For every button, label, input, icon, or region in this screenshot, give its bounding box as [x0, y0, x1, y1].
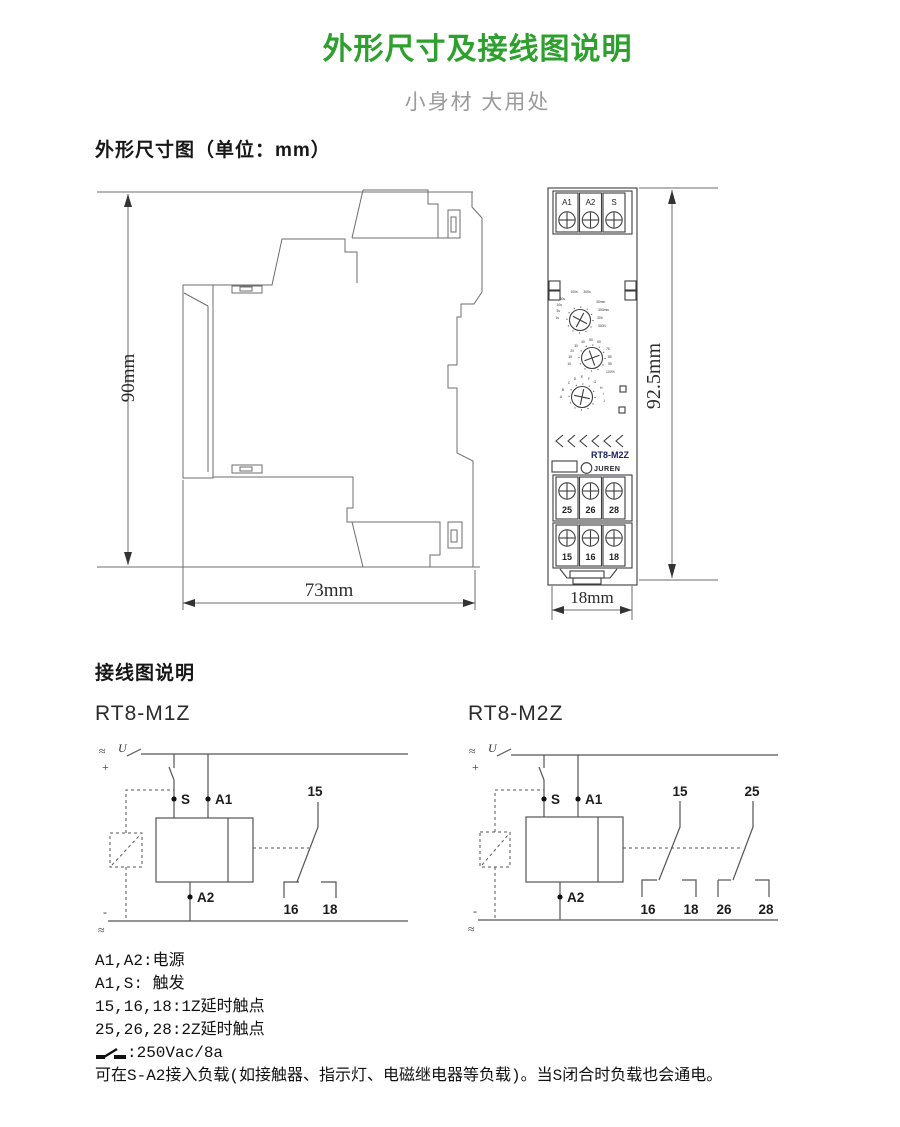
mid-terminal-block: 25 26 28	[553, 475, 632, 521]
knob3-label: B	[562, 388, 565, 392]
contact-26-label: 26	[716, 902, 732, 917]
note-load: 可在S-A2接入负载(如接触器、指示灯、电磁继电器等负载)。当S闭合时负载也会通…	[95, 1065, 885, 1088]
knob2-label: 40	[581, 340, 585, 344]
contact-18-label: 18	[683, 902, 699, 917]
led-red-icon	[619, 407, 625, 413]
brand-name: JUREN	[594, 464, 620, 473]
knob1-label: 1s	[555, 316, 559, 320]
screw-icon	[559, 212, 622, 228]
front-view-drawing: A1 A2 S	[540, 180, 725, 640]
ac-symbol: ≈	[468, 922, 475, 936]
front-view-dimensions: 92.5mm 18mm	[552, 188, 718, 620]
ac-symbol: ≈	[469, 744, 476, 758]
label-window	[552, 461, 577, 472]
knob2-label: 20	[570, 349, 574, 353]
note-contacts-1z: 15,16,18:1Z延时触点	[95, 996, 885, 1019]
contact-blade	[733, 801, 753, 880]
knob2-label: 30	[574, 344, 578, 348]
knob2-icon[interactable]	[579, 345, 605, 371]
knob1-label: 300h	[598, 324, 606, 328]
side-width-label: 73mm	[305, 580, 354, 601]
minus-label: -	[103, 905, 107, 919]
a1-label: A1	[585, 792, 603, 807]
a2-label: A2	[567, 890, 584, 905]
knob3-label: G	[594, 380, 597, 384]
front-height-label: 92.5mm	[643, 343, 665, 410]
brand-initial: R	[584, 464, 590, 473]
knob1-label: 30h	[597, 316, 603, 320]
wiring-heading: 接线图说明	[95, 658, 195, 685]
load-box	[480, 790, 544, 920]
terminal-26-label: 26	[585, 505, 595, 515]
terminal-s-label: S	[611, 198, 616, 207]
relay-box	[156, 818, 253, 882]
terminal-15-label: 15	[562, 552, 572, 562]
page-title: 外形尺寸及接线图说明	[0, 24, 900, 68]
terminal-28-label: 28	[609, 505, 619, 515]
minus-label: -	[473, 904, 477, 918]
knob3-label: H	[600, 386, 603, 390]
knob3-label: E	[581, 375, 584, 379]
note-contacts-2z: 25,26,28:2Z延时触点	[95, 1019, 885, 1042]
ac-symbol: ≈	[98, 923, 105, 937]
bottom-terminal-block: 15 16 18	[553, 523, 632, 568]
plus-label: +	[102, 760, 109, 774]
a2-label: A2	[197, 890, 214, 905]
terminal-16-label: 16	[585, 552, 595, 562]
contact-rating-icon	[95, 1046, 127, 1061]
knob2-label: 75	[606, 347, 610, 351]
knob3-label: I	[603, 392, 604, 396]
knob3-icon[interactable]	[569, 384, 595, 410]
contact-15-label: 15	[672, 784, 688, 799]
terminal-25-label: 25	[562, 505, 572, 515]
contact-blade	[659, 801, 680, 880]
page-subtitle: 小身材 大用处	[0, 86, 900, 116]
relay-box	[526, 817, 623, 882]
note-power: A1,A2:电源	[95, 950, 885, 973]
note-trigger: A1,S: 触发	[95, 973, 885, 996]
s-label: S	[551, 792, 560, 807]
note-rating-text: :250Vac/8a	[127, 1042, 223, 1065]
knob1-icon[interactable]	[567, 307, 593, 333]
ac-symbol: ≈	[99, 744, 106, 758]
knob3-label: C	[568, 381, 571, 385]
model-label: RT8-M2Z	[591, 450, 630, 460]
contact-28-label: 28	[758, 902, 774, 917]
terminal-a1-label: A1	[562, 198, 572, 207]
wiring-m2z-title: RT8-M2Z	[468, 702, 563, 726]
plus-label: +	[472, 760, 479, 774]
knob2-label: 100%	[606, 370, 615, 374]
wiring-m1z-title: RT8-M1Z	[95, 702, 190, 726]
knob3-label: D	[574, 377, 577, 381]
side-view-drawing: 90mm 73mm	[90, 180, 500, 640]
note-rating: :250Vac/8a	[95, 1042, 885, 1065]
terminal-a2-label: A2	[586, 198, 596, 207]
a1-label: A1	[215, 792, 233, 807]
knob2-label: 60	[597, 340, 601, 344]
knob2-label: 95	[608, 362, 612, 366]
knob2-label: 50	[589, 338, 593, 342]
notes: A1,A2:电源 A1,S: 触发 15,16,18:1Z延时触点 25,26,…	[95, 950, 885, 1088]
top-terminal-block: A1 A2 S	[553, 191, 632, 234]
brand-logo: R JUREN	[581, 463, 620, 474]
knob1-label: 30s	[560, 297, 566, 301]
wiring-m2z-diagram: ≈ U + S A1 A2 - ≈	[455, 735, 785, 940]
knob1-label: 100s	[570, 290, 578, 294]
page: 外形尺寸及接线图说明 小身材 大用处 外形尺寸图（单位：mm）	[0, 0, 900, 1127]
dimensions-heading: 外形尺寸图（单位：mm）	[95, 135, 331, 162]
screw-icon	[559, 530, 622, 546]
knob3-label: F	[588, 377, 590, 381]
side-height-label: 90mm	[118, 354, 139, 403]
knob1-label: 300min	[598, 308, 609, 312]
side-view-dimensions: 90mm 73mm	[118, 194, 475, 610]
s-label: S	[181, 792, 190, 807]
u-label: U	[488, 741, 498, 755]
contact-16-label: 16	[640, 902, 656, 917]
knob1-label: 3s	[556, 309, 560, 313]
load-box	[110, 790, 174, 921]
contact-25-label: 25	[744, 784, 760, 799]
knob1-label: 30min	[596, 300, 605, 304]
terminal-18-label: 18	[609, 552, 619, 562]
screw-icon	[559, 483, 622, 499]
contact-18-label: 18	[322, 902, 338, 917]
contact-15-label: 15	[307, 784, 323, 799]
contact-16-label: 16	[283, 902, 299, 917]
wiring-m1z-diagram: ≈ U + S A1 A2 - ≈	[85, 735, 415, 940]
front-width-label: 18mm	[570, 588, 613, 607]
chevrons-icon	[556, 435, 623, 447]
knob1-label: 300s	[583, 290, 591, 294]
led-green-icon	[620, 386, 626, 392]
knob3-label: J	[603, 399, 605, 403]
side-view-outline	[97, 190, 482, 567]
contact-blade	[297, 802, 318, 882]
knob2-label: 85	[608, 355, 612, 359]
knob2-label: 10	[567, 362, 571, 366]
u-label: U	[118, 741, 128, 755]
din-clip	[560, 569, 617, 584]
knob1-label: 10s	[557, 303, 563, 307]
knob3-label: A	[560, 395, 563, 399]
knob2-label: 15	[568, 355, 572, 359]
